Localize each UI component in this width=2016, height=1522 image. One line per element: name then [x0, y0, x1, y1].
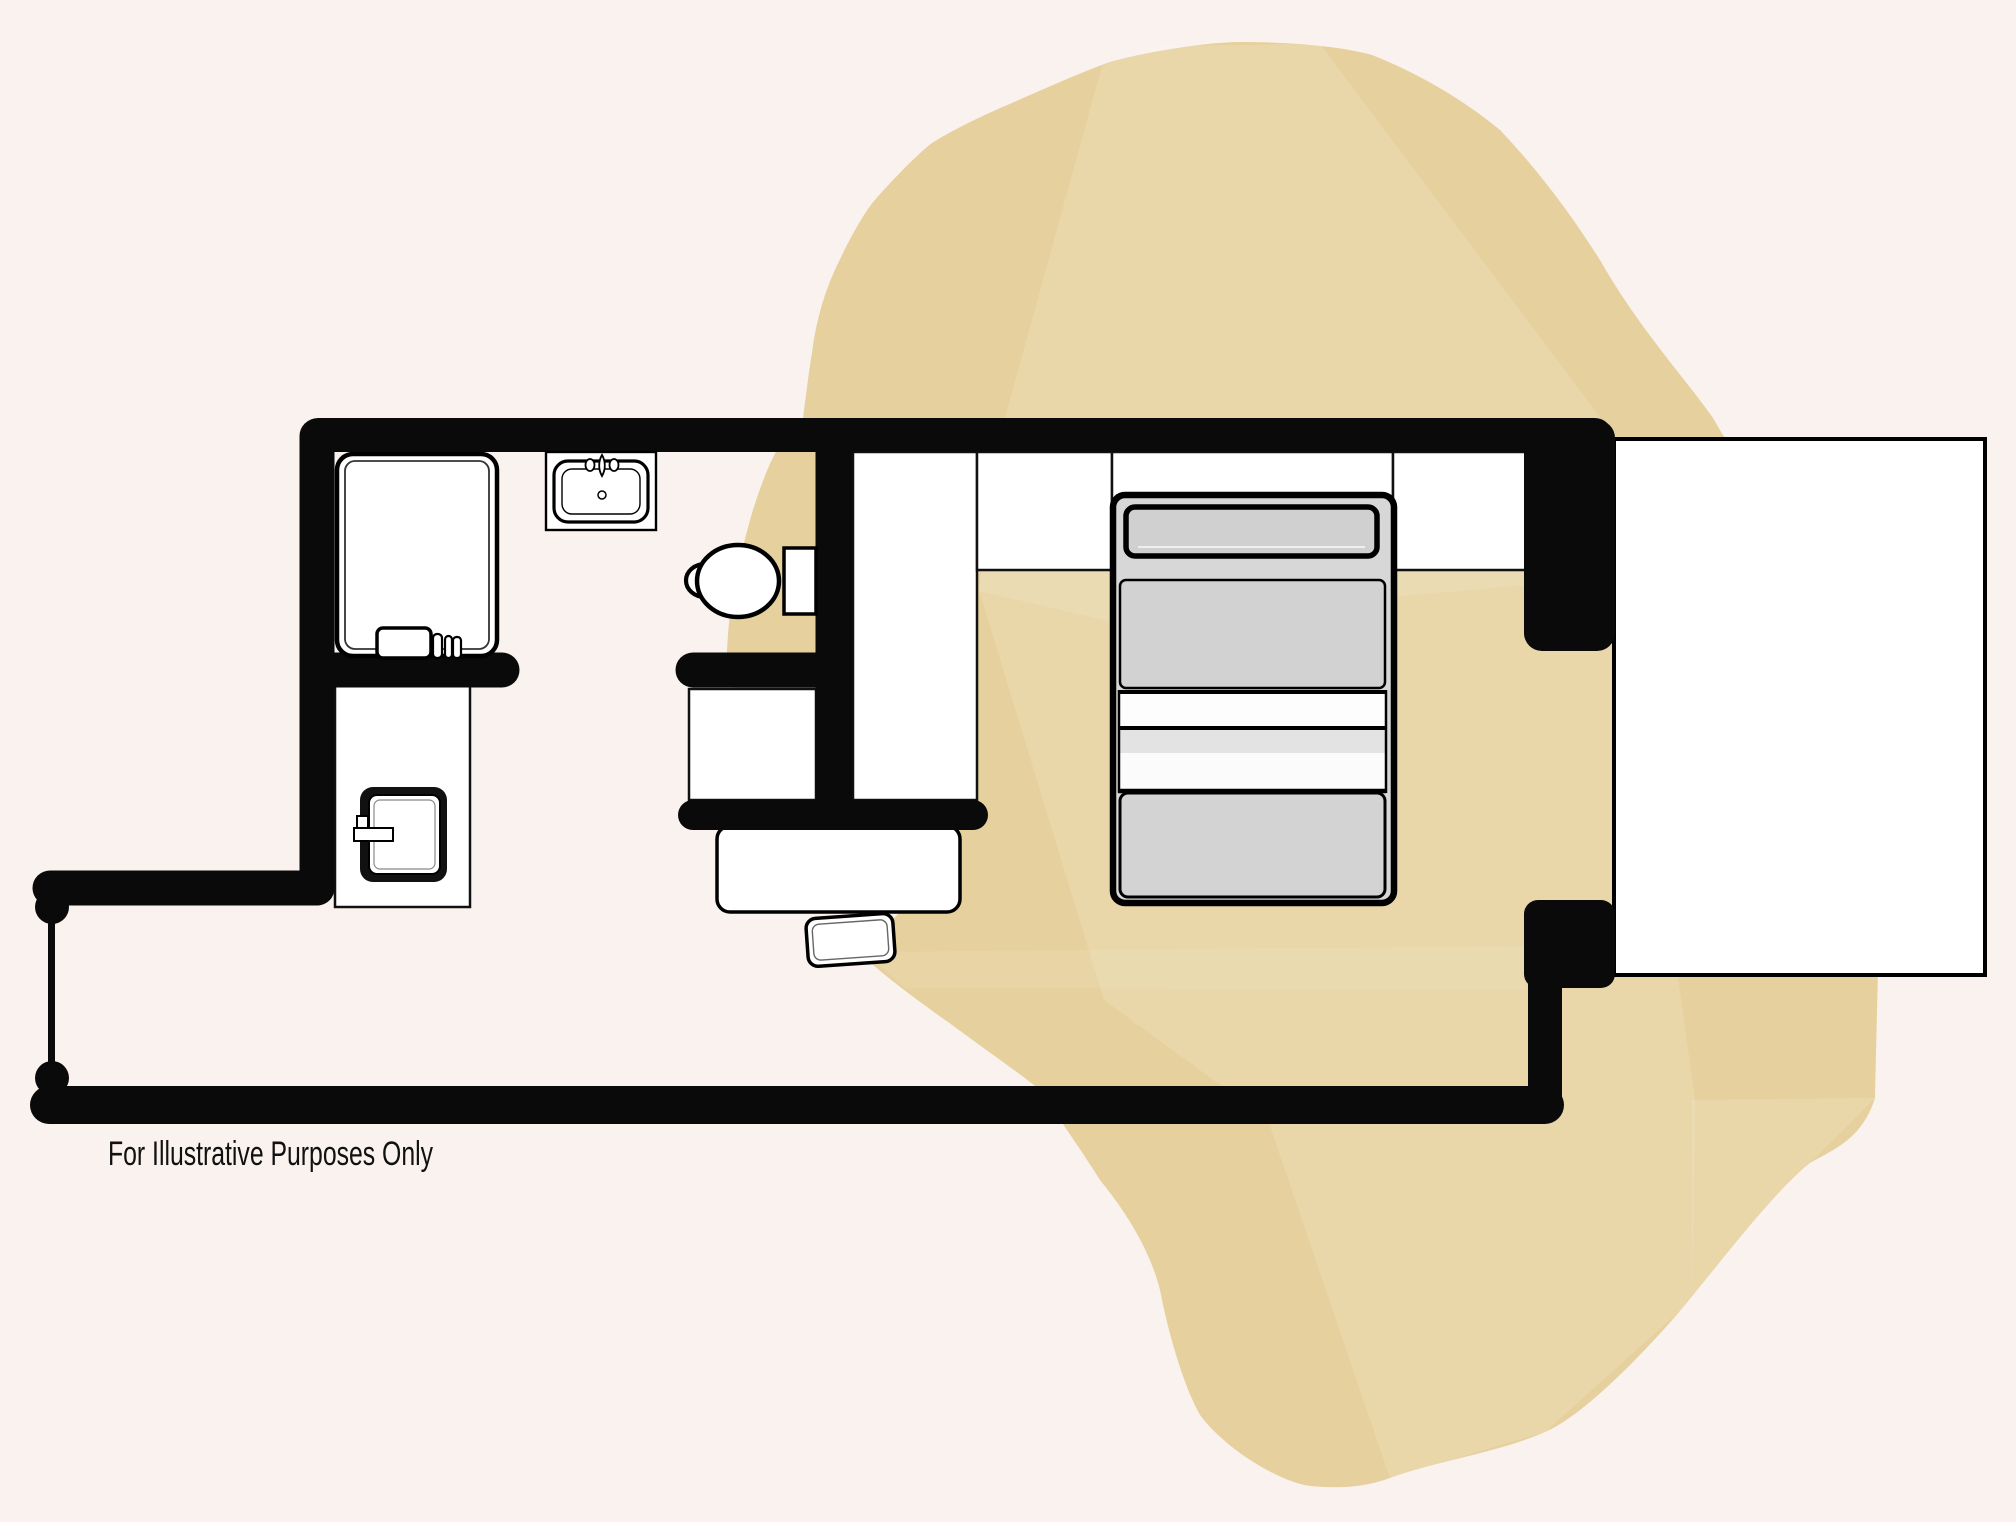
svg-text:For Illustrative Purposes Only: For Illustrative Purposes Only — [108, 1135, 433, 1173]
